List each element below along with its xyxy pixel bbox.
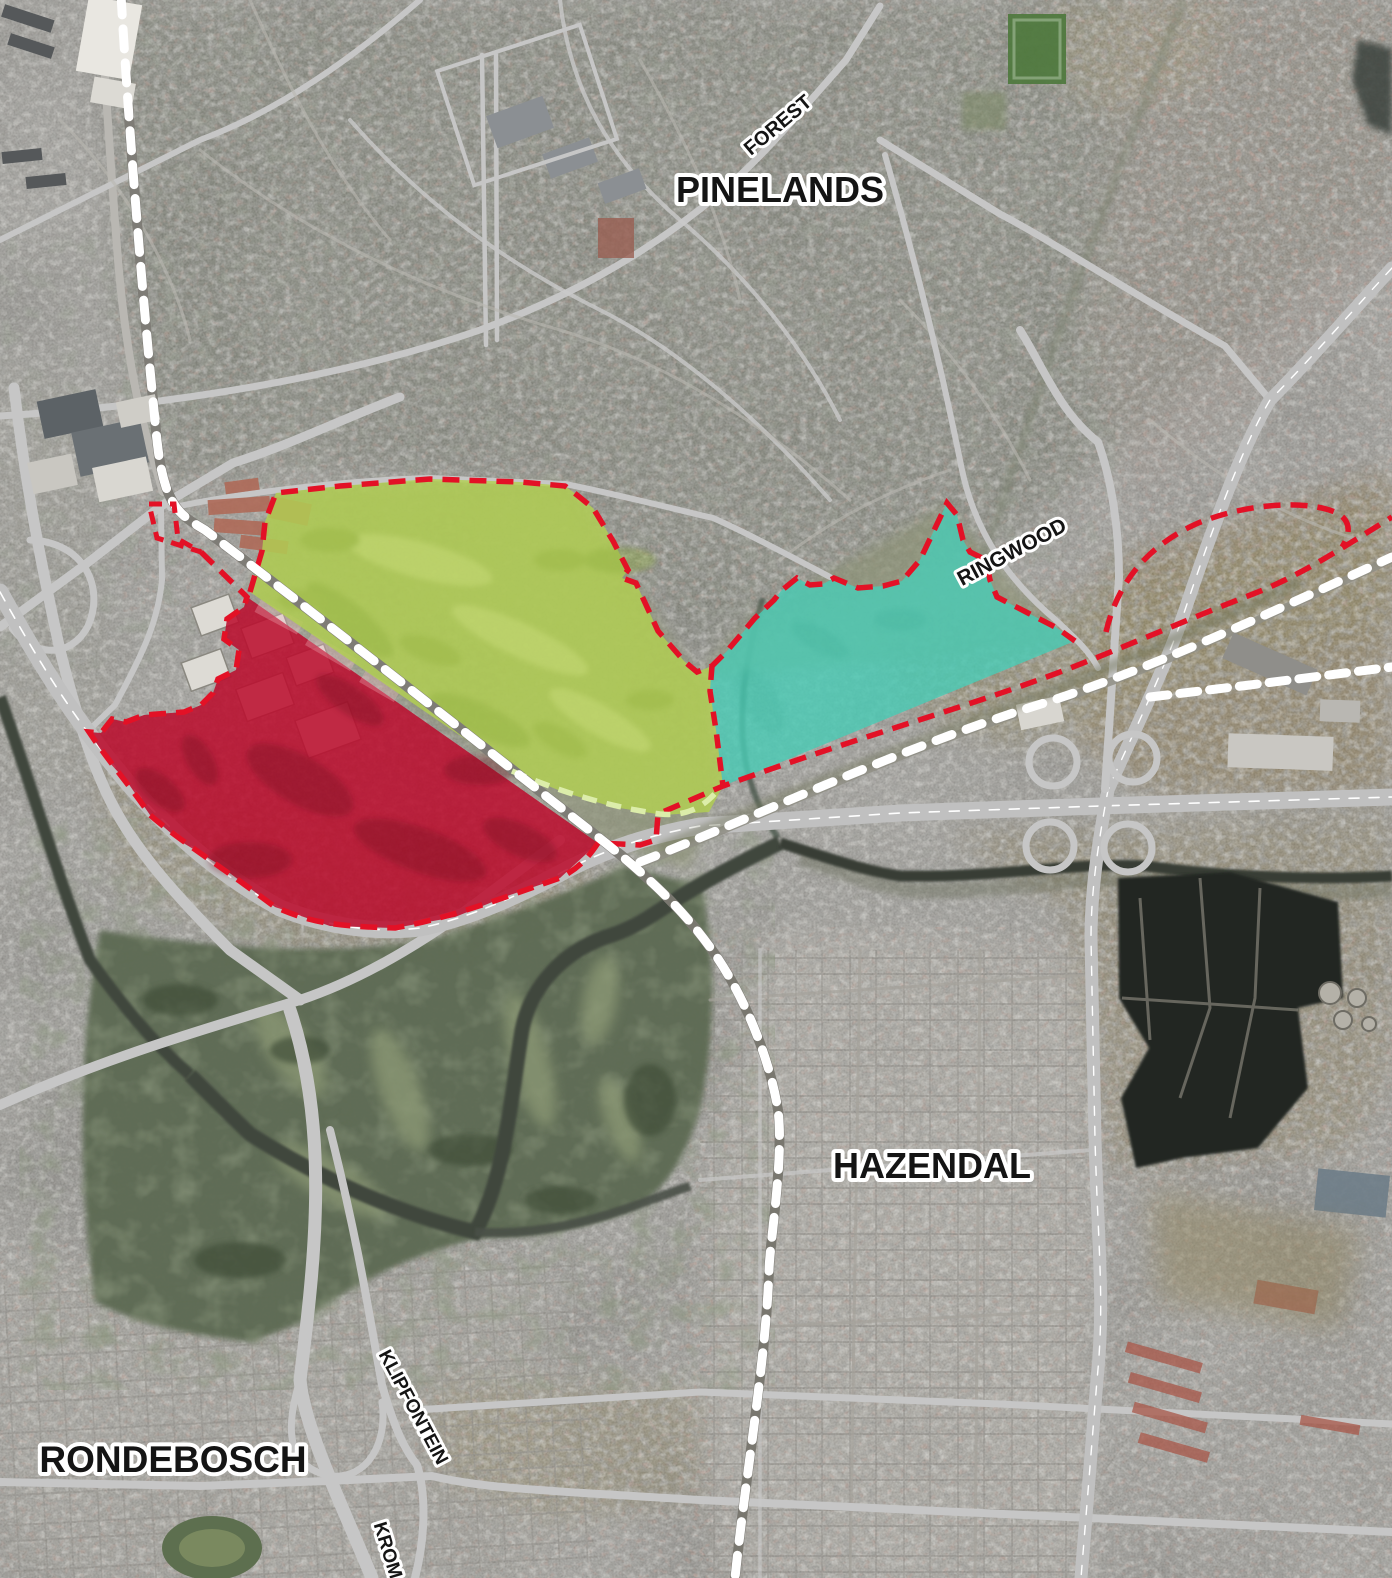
svg-text:PINELANDS: PINELANDS [676,169,884,210]
svg-text:HAZENDAL: HAZENDAL [833,1145,1031,1186]
svg-text:RONDEBOSCH: RONDEBOSCH [39,1439,306,1480]
